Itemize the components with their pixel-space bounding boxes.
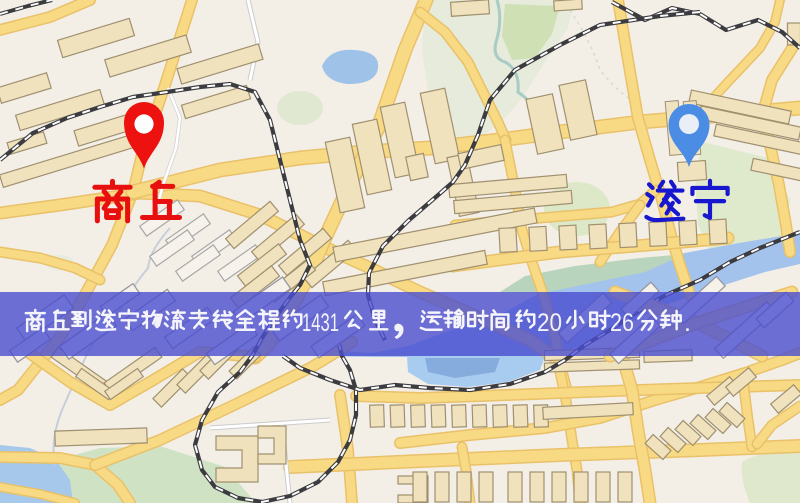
- svg-text:.: .: [684, 309, 691, 337]
- svg-text:26: 26: [610, 309, 634, 337]
- svg-text:1431: 1431: [302, 309, 339, 337]
- svg-text:20: 20: [537, 309, 562, 337]
